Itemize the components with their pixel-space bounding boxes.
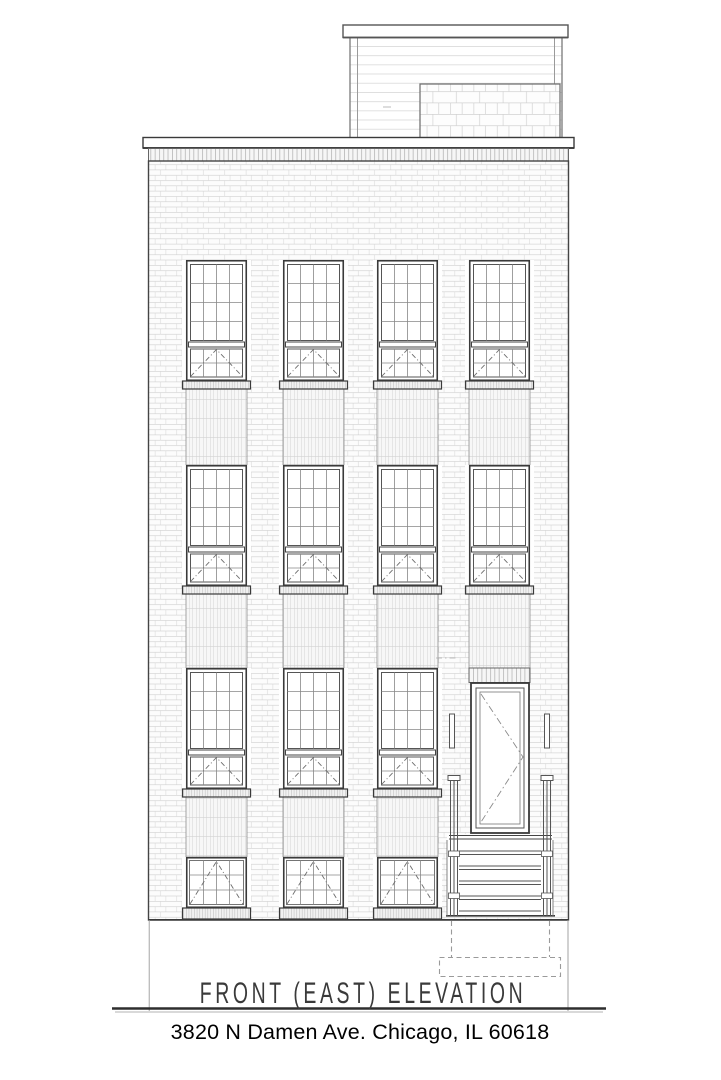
window-floor3-col1 <box>182 465 251 594</box>
spandrel-panel <box>283 594 344 668</box>
rooftop-penthouse <box>343 25 568 138</box>
window-floor3-col4 <box>465 465 534 594</box>
window-floor3-col2 <box>279 465 348 594</box>
below-grade-stair-footprint <box>440 921 561 977</box>
footprint-projection-lines <box>452 921 550 957</box>
window-floor2-col1 <box>182 668 251 797</box>
elevation-sheet: FRONT (EAST) ELEVATION 3820 N Damen Ave.… <box>0 0 721 1080</box>
footprint-dashed-outline <box>440 958 561 977</box>
stoop-rail-right-bar <box>542 893 553 899</box>
window-floor2-col2 <box>279 668 348 797</box>
spandrel-panel <box>377 389 438 465</box>
window-floor4-col1 <box>182 260 251 389</box>
window-floor4-col3 <box>373 260 442 389</box>
spandrel-panel <box>186 389 247 465</box>
spandrel-panel <box>377 594 438 668</box>
door-soldier-header <box>469 668 530 683</box>
window-ground-col1 <box>182 857 251 919</box>
stoop-rail-right-bar <box>542 851 553 857</box>
spandrel-panel <box>469 594 530 668</box>
entry-sconce-left <box>450 714 455 748</box>
spandrel-panel <box>283 797 344 857</box>
drawing-title: FRONT (EAST) ELEVATION <box>200 978 526 1010</box>
window-ground-col2 <box>279 857 348 919</box>
front-east-elevation-drawing: FRONT (EAST) ELEVATION 3820 N Damen Ave.… <box>0 0 721 1080</box>
parapet-coping-cap <box>143 138 574 149</box>
penthouse-block-wall <box>420 84 560 138</box>
stoop-rail-right-cap <box>541 776 553 781</box>
window-floor2-col3 <box>373 668 442 797</box>
spandrel-panel <box>283 389 344 465</box>
window-floor4-col2 <box>279 260 348 389</box>
window-ground-col3 <box>373 857 442 919</box>
parapet-soldier-course <box>149 149 569 162</box>
window-floor4-col4 <box>465 260 534 389</box>
penthouse-coping-cap <box>343 25 568 38</box>
spandrel-panel <box>186 797 247 857</box>
stoop-rail-left-cap <box>448 776 460 781</box>
entry-sconce-right <box>545 714 550 748</box>
drawing-address: 3820 N Damen Ave. Chicago, IL 60618 <box>171 1020 550 1044</box>
spandrel-panel <box>469 389 530 465</box>
window-floor3-col3 <box>373 465 442 594</box>
spandrel-panel <box>377 797 438 857</box>
parapet <box>143 138 574 162</box>
stoop-rail-left-bar <box>449 851 460 857</box>
spandrel-panel <box>186 594 247 668</box>
stoop-rail-left-bar <box>449 893 460 899</box>
